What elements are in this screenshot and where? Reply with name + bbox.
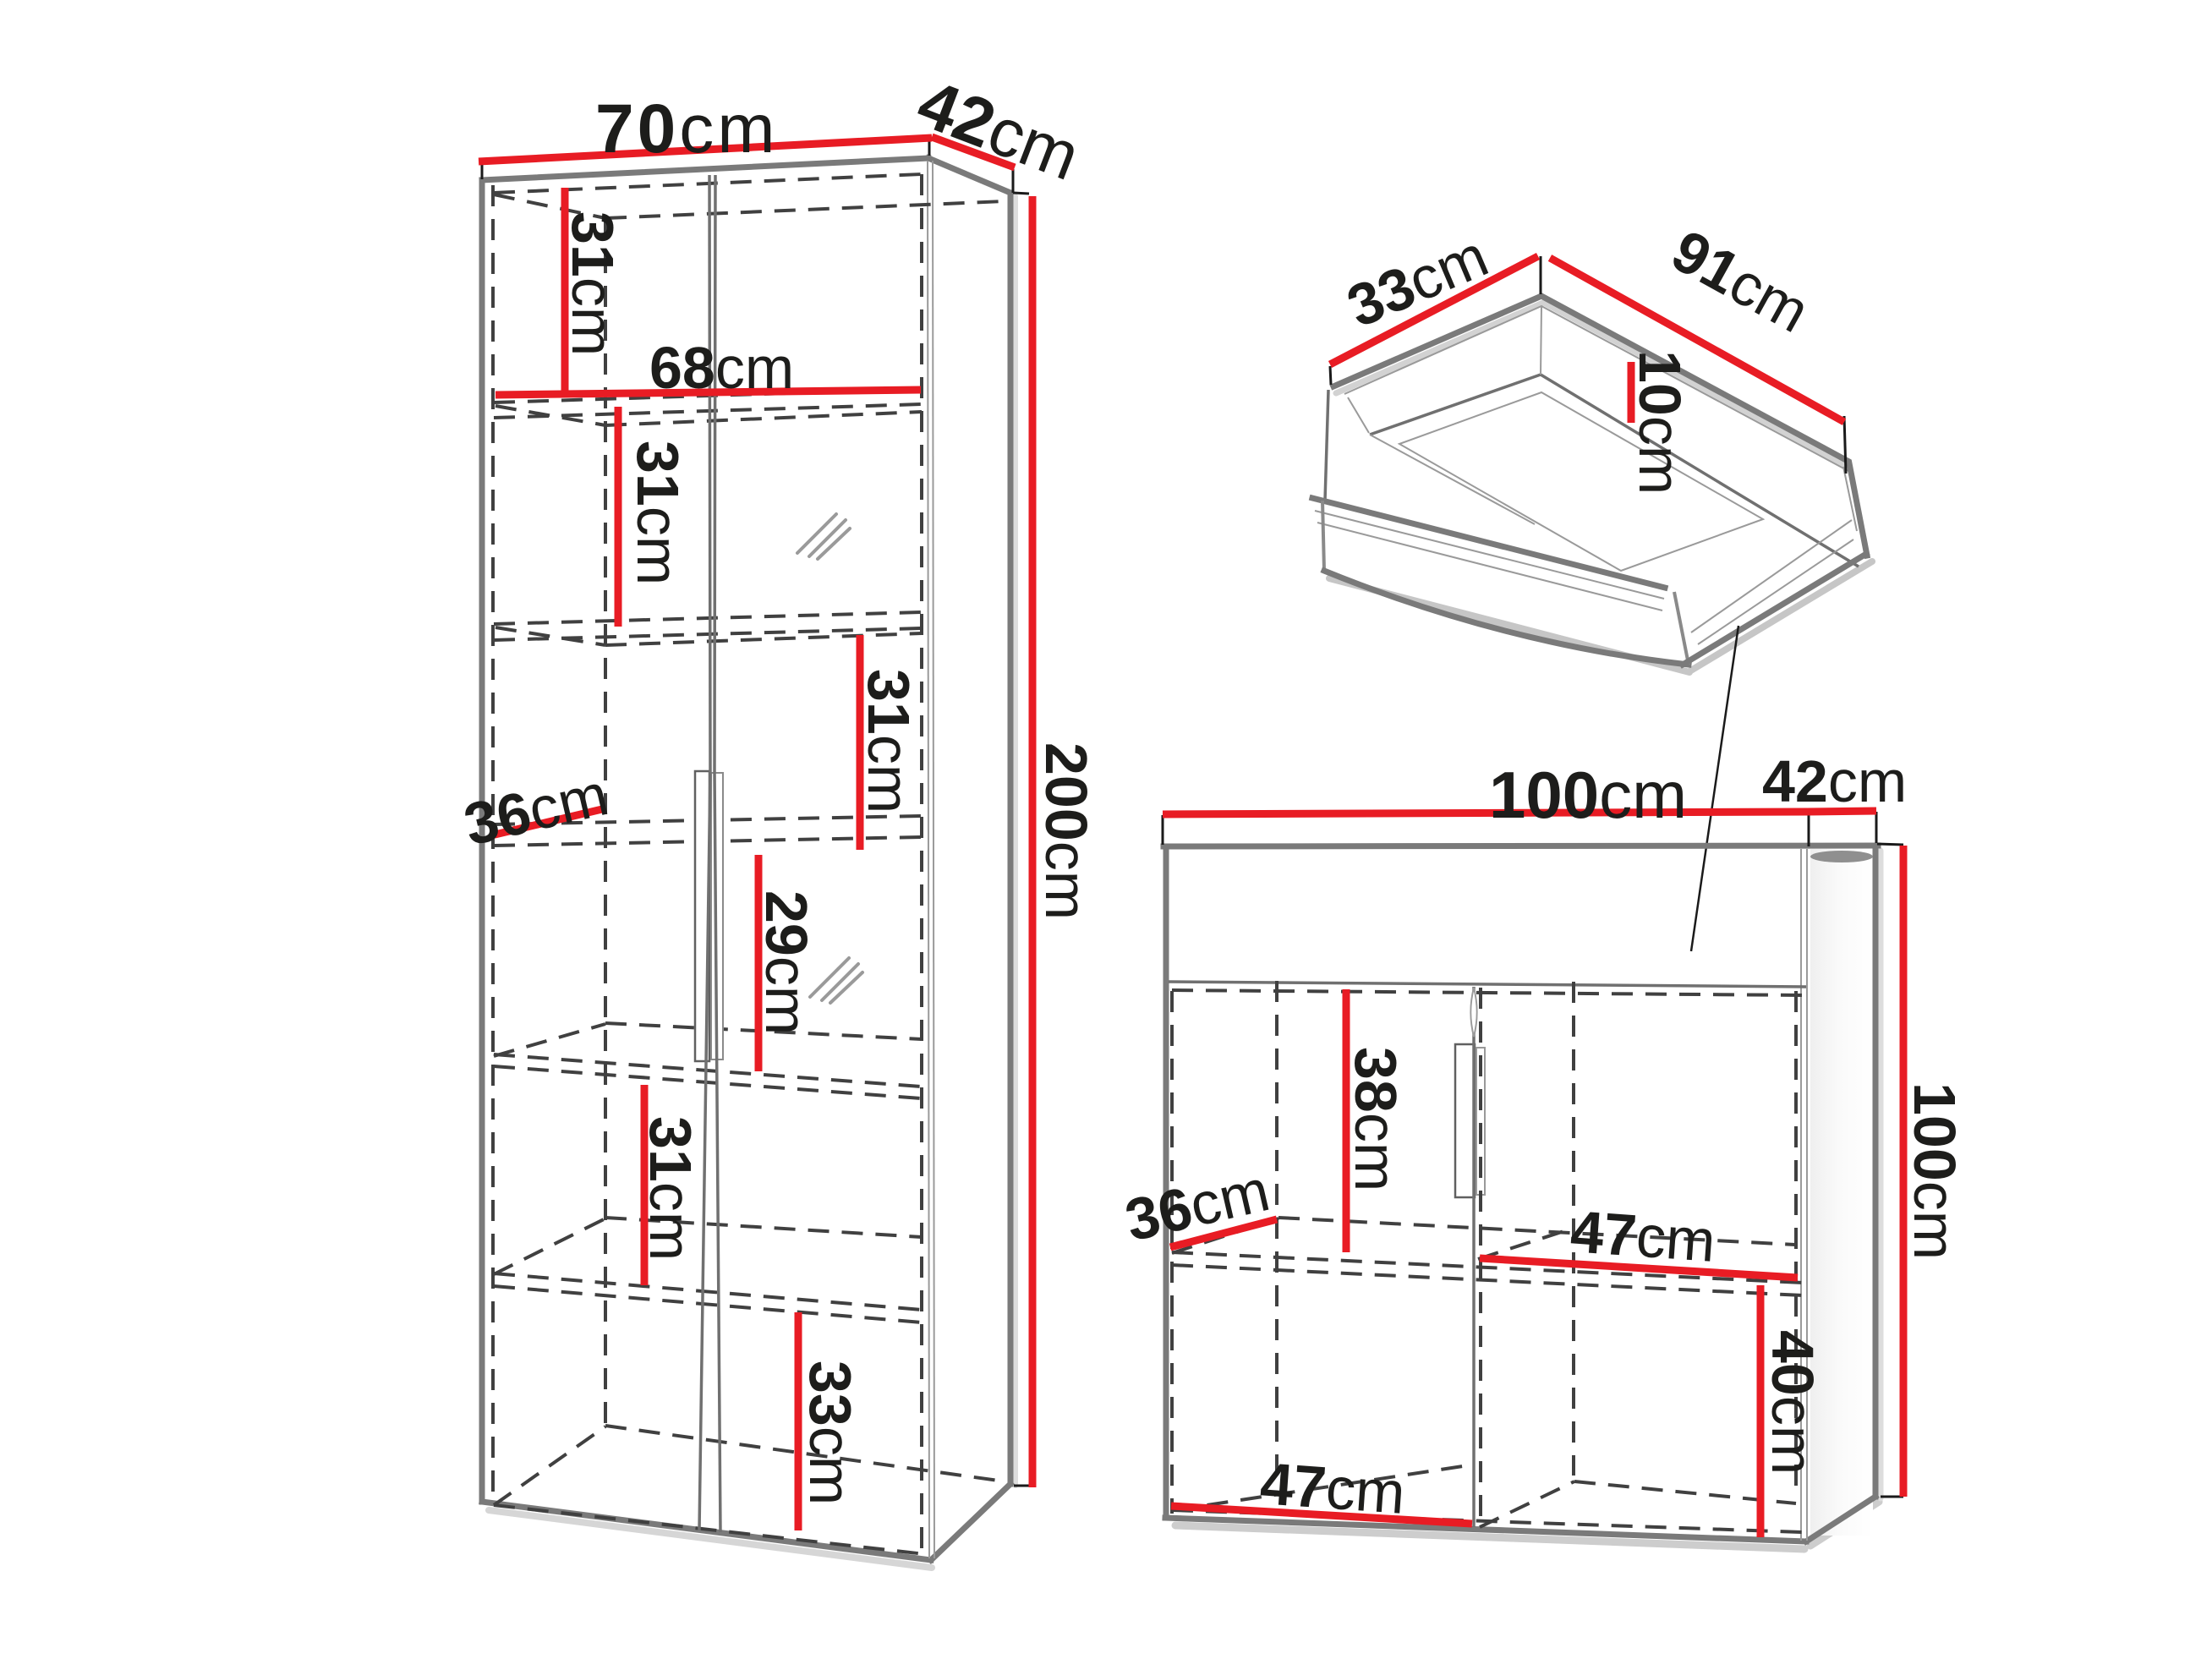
svg-text:33cm: 33cm [797, 1361, 863, 1505]
svg-text:38cm: 38cm [1343, 1047, 1409, 1191]
svg-text:200cm: 200cm [1033, 742, 1099, 920]
svg-text:100cm: 100cm [1902, 1082, 1968, 1260]
svg-text:29cm: 29cm [753, 890, 819, 1035]
svg-text:31cm: 31cm [638, 1116, 704, 1261]
svg-text:70cm: 70cm [595, 90, 779, 167]
svg-text:40cm: 40cm [1760, 1330, 1826, 1475]
svg-text:47cm: 47cm [1569, 1198, 1717, 1274]
svg-text:100cm: 100cm [1489, 758, 1687, 832]
svg-text:68cm: 68cm [649, 335, 794, 401]
svg-text:31cm: 31cm [560, 211, 626, 356]
svg-text:31cm: 31cm [856, 669, 922, 813]
svg-text:47cm: 47cm [1258, 1450, 1407, 1526]
svg-text:42cm: 42cm [1762, 748, 1907, 814]
svg-text:10cm: 10cm [1627, 350, 1693, 495]
svg-text:31cm: 31cm [625, 441, 691, 585]
